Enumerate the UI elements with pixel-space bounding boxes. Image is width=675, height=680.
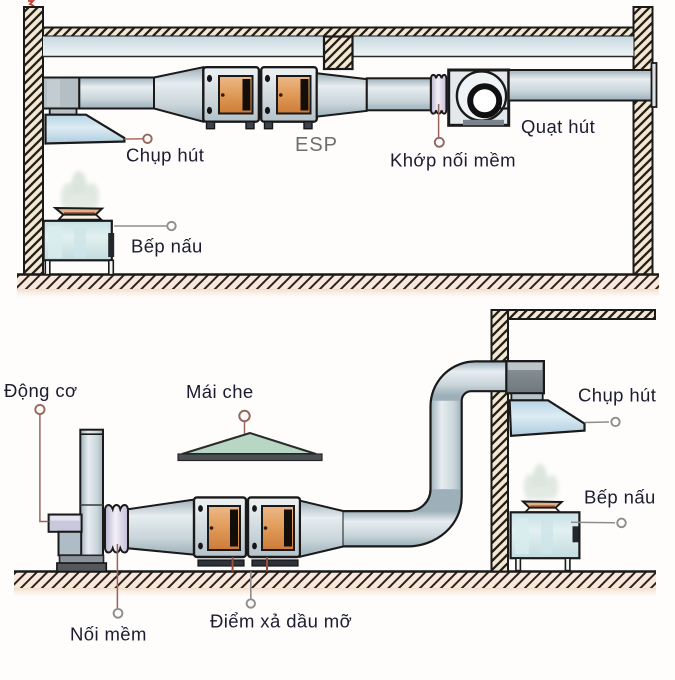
svg-text:Điểm xả dầu mỡ: Điểm xả dầu mỡ <box>210 611 352 632</box>
svg-text:Động cơ: Động cơ <box>4 380 78 401</box>
svg-text:Khớp nối mềm: Khớp nối mềm <box>390 150 516 171</box>
svg-text:Bếp nấu: Bếp nấu <box>131 236 203 257</box>
svg-text:Chụp hút: Chụp hút <box>578 385 656 406</box>
svg-text:Mái che: Mái che <box>186 381 254 402</box>
svg-text:Nối mềm: Nối mềm <box>70 624 147 645</box>
svg-text:Chụp hút: Chụp hút <box>126 145 204 166</box>
svg-text:Bếp nấu: Bếp nấu <box>584 487 656 508</box>
svg-text:Quạt hút: Quạt hút <box>521 116 595 137</box>
svg-text:ESP: ESP <box>295 134 338 156</box>
